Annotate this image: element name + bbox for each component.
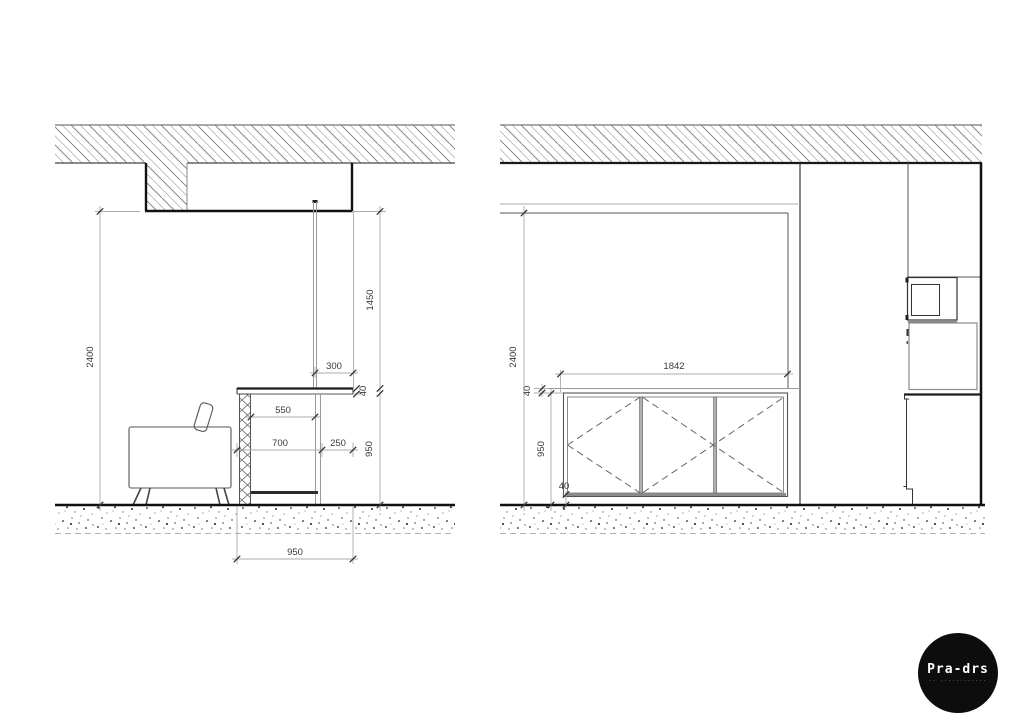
dim-label-sideboard-width: 1842 [663, 361, 684, 372]
toe-kick [904, 487, 913, 506]
ceiling-slab-right [500, 125, 982, 163]
studio-logo-brand: Pra-drs [927, 663, 989, 676]
dim-label-sideboard-height: 950 [536, 441, 547, 457]
dim-label-worktop-thickness: 40 [358, 386, 369, 397]
sofa-legs [133, 488, 229, 505]
worktop-support [316, 394, 321, 505]
dim-label-screen-height: 1450 [365, 289, 376, 310]
ceiling-slab [55, 125, 455, 211]
drawing-canvas: 2400 1450 300 40 950 550 700 250 950 [0, 0, 1024, 724]
dim-label-base-width: 950 [287, 547, 303, 558]
handle-mark [907, 341, 909, 344]
worktop [237, 388, 353, 394]
left-elevation: 2400 1450 300 40 950 550 700 250 950 [55, 125, 455, 564]
hinge-mark [906, 278, 909, 283]
dim-label-overhang: 250 [330, 438, 346, 449]
appliance-front [909, 323, 977, 390]
sideboard-mullion [640, 397, 643, 493]
dim-label-knee-clearance: 550 [275, 405, 291, 416]
dim-label-screen-offset: 300 [326, 361, 342, 372]
sofa-backrest [193, 402, 214, 433]
microwave [906, 278, 958, 321]
partition-screen [313, 200, 318, 388]
floor-slab-right [500, 505, 985, 534]
dim-label-top-thickness: 40 [522, 386, 533, 397]
tall-cabinet [904, 163, 982, 505]
dim-label-desk-depth: 700 [272, 438, 288, 449]
right-elevation: 2400 1842 40 950 40 [500, 125, 985, 534]
dim-label-worktop-height: 950 [364, 441, 375, 457]
handle-mark [907, 329, 909, 336]
worktop-post [240, 394, 251, 505]
dim-label-plinth-height: 40 [559, 481, 570, 492]
dim-label-ceiling-height-left: 2400 [85, 346, 96, 367]
studio-logo: Pra-drs ·· ············ [918, 633, 998, 713]
studio-logo-tagline: ·· ············ [929, 679, 988, 683]
door-swing-lines [568, 398, 784, 493]
dimensions-right: 2400 1842 40 950 40 [508, 206, 793, 511]
architectural-drawing: 2400 1450 300 40 950 550 700 250 950 [0, 0, 1024, 724]
sofa [129, 402, 231, 505]
dimension-ticks [521, 210, 791, 508]
hinge-mark [906, 315, 909, 320]
floor-slab-left [55, 505, 455, 534]
sideboard [564, 393, 788, 497]
bulkhead-block [147, 163, 187, 210]
dim-label-ceiling-height-right: 2400 [508, 346, 519, 367]
